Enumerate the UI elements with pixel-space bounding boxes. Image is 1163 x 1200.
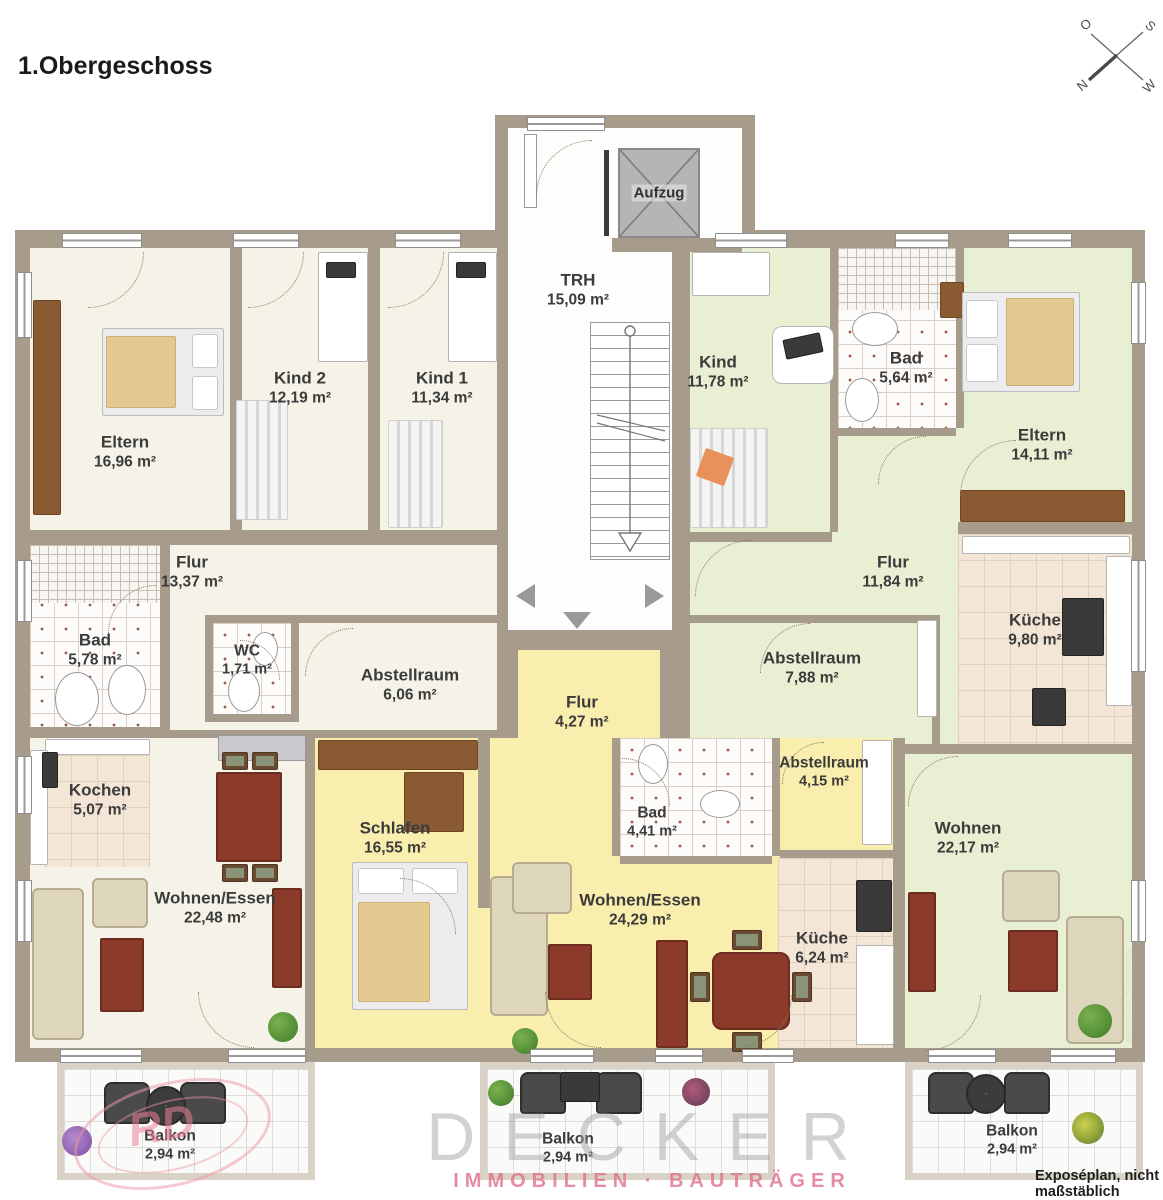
plant	[1072, 1112, 1104, 1144]
balcony-chair	[1004, 1072, 1050, 1114]
room-label-wohnen-right: Wohnen22,17 m²	[935, 818, 1002, 859]
bidet	[108, 665, 146, 715]
window	[715, 233, 787, 248]
bed-pillow	[966, 300, 998, 338]
armchair	[512, 862, 572, 914]
bed-blanket	[106, 336, 176, 408]
bed-pillow	[966, 344, 998, 382]
logo-initials: RD	[124, 1093, 199, 1158]
wall-bad-middle-left	[612, 738, 620, 856]
window	[17, 756, 32, 814]
room-label-abstellraum-left: Abstellraum6,06 m²	[361, 665, 459, 706]
plant	[1078, 1004, 1112, 1038]
window	[1050, 1049, 1116, 1063]
balcony-chair	[596, 1072, 642, 1114]
tv-sideboard	[908, 892, 936, 992]
window	[1008, 233, 1072, 248]
room-label-bad-middle: Bad4,41 m²	[627, 803, 677, 841]
shower-bad-right	[838, 248, 956, 310]
arrow-right-apartment	[645, 584, 664, 608]
laptop	[326, 262, 356, 278]
room-label-bad-right: Bad5,64 m²	[879, 348, 932, 389]
wall-middle-right-apartments	[893, 738, 905, 1048]
wall-kueche-right-bottom	[958, 744, 1132, 752]
window	[17, 880, 32, 942]
room-label-kueche-middle: Küche6,24 m²	[795, 928, 848, 969]
armchair	[1002, 870, 1060, 922]
chair	[222, 864, 248, 882]
wall-kind-right-bottom	[690, 532, 832, 542]
balcony-door-kueche	[742, 1049, 794, 1063]
fridge	[856, 945, 894, 1045]
bed-pillow	[358, 868, 404, 894]
room-label-schlafen: Schlafen16,55 m²	[360, 818, 431, 859]
room-label-kochen: Kochen5,07 m²	[69, 780, 131, 821]
wall-bad-middle-bottom	[620, 856, 772, 864]
window	[1131, 560, 1146, 672]
kitchen-counter	[1106, 556, 1132, 706]
window	[395, 233, 461, 248]
stove	[42, 752, 58, 788]
room-label-wc: WC1,71 m²	[222, 641, 272, 679]
compass-o: O	[1077, 15, 1094, 33]
storage-cupboard	[917, 620, 937, 717]
wall-wc-top	[205, 615, 307, 623]
room-label-wohnen-essen-middle: Wohnen/Essen24,29 m²	[579, 890, 701, 931]
window	[233, 233, 299, 248]
room-label-wohnen-essen-left: Wohnen/Essen22,48 m²	[154, 888, 276, 929]
room-label-flur-middle: Flur4,27 m²	[555, 692, 608, 733]
room-label-balkon-middle: Balkon2,94 m²	[542, 1129, 594, 1167]
room-label-flur-right: Flur11,84 m²	[862, 552, 923, 593]
compass-s: S	[1142, 17, 1159, 34]
arrow-middle-apartment	[563, 612, 591, 629]
room-label-kind-right: Kind11,78 m²	[687, 352, 748, 393]
chair	[792, 972, 812, 1002]
window	[655, 1049, 703, 1063]
window	[62, 233, 142, 248]
elevator: Aufzug	[618, 148, 700, 238]
compass-n: N	[1074, 76, 1091, 94]
balcony-table	[966, 1074, 1006, 1114]
toilet	[845, 378, 879, 422]
coffee-table	[100, 938, 144, 1012]
room-label-kueche-right: Küche9,80 m²	[1008, 610, 1061, 651]
rug	[388, 420, 443, 528]
window	[1131, 880, 1146, 942]
tv-sideboard	[656, 940, 688, 1048]
scale-note: Exposéplan, nicht maßstäblich	[1035, 1168, 1163, 1200]
page-title: 1.Obergeschoss	[18, 52, 213, 81]
balcony-door-left	[228, 1049, 306, 1063]
arrow-left-apartment	[516, 584, 535, 608]
toilet	[55, 672, 99, 726]
room-label-abstellraum-middle: Abstellraum4,15 m²	[779, 753, 869, 791]
plant	[268, 1012, 298, 1042]
armchair	[92, 878, 148, 928]
stove	[856, 880, 892, 932]
dishwasher	[1032, 688, 1066, 726]
window	[895, 233, 949, 248]
compass-rose: O S N W	[1064, 12, 1160, 102]
plant	[682, 1078, 710, 1106]
wall-eltern-right-bottom	[958, 522, 1132, 534]
kitchen-counter	[962, 536, 1130, 554]
single-bed	[692, 252, 770, 296]
stove	[1062, 598, 1104, 656]
room-label-kind1: Kind 111,34 m²	[411, 368, 472, 409]
balcony-door-middle	[530, 1049, 594, 1063]
chair	[252, 752, 278, 770]
window	[17, 560, 32, 622]
door-leaf-stairwell	[524, 134, 537, 208]
balcony-door-right	[928, 1049, 996, 1063]
wall-abstell-middle-bottom	[780, 850, 893, 858]
wall-wc-left	[205, 623, 213, 722]
wall-bad-right-bottom	[838, 428, 956, 436]
wardrobe	[318, 740, 478, 770]
elevator-label: Aufzug	[632, 185, 687, 202]
room-label-kind2: Kind 212,19 m²	[269, 368, 331, 409]
illustrator-credit: Illustration©ImmoGrafik	[1124, 950, 1133, 1043]
wall-aufzug-left	[604, 150, 609, 236]
coffee-table	[1008, 930, 1058, 992]
room-label-trh: TRH15,09 m²	[547, 270, 609, 311]
chair	[690, 972, 710, 1002]
window	[1131, 282, 1146, 344]
laptop	[456, 262, 486, 278]
window	[17, 272, 32, 338]
floorplan-page: 1.Obergeschoss O S N W	[0, 0, 1163, 1200]
room-label-abstellraum-right: Abstellraum7,88 m²	[763, 648, 861, 689]
sink	[852, 312, 898, 346]
room-label-balkon-right: Balkon2,94 m²	[986, 1121, 1038, 1159]
entry-door-stairwell	[527, 117, 605, 131]
dining-table	[216, 772, 282, 862]
chair	[732, 930, 762, 950]
bed-blanket	[1006, 298, 1074, 386]
staircase	[590, 322, 670, 560]
room-label-eltern-left: Eltern16,96 m²	[94, 432, 156, 473]
rug	[236, 400, 288, 520]
tv-sideboard	[272, 888, 302, 988]
wall-wc-right	[291, 623, 299, 722]
wall-abstell-right-top	[690, 615, 940, 623]
bed-pillow	[192, 334, 218, 368]
nightstand	[940, 282, 964, 318]
wall-kind-right	[830, 248, 838, 532]
window	[60, 1049, 142, 1063]
balcony-table	[560, 1072, 600, 1102]
sofa	[32, 888, 84, 1040]
wardrobe	[33, 300, 61, 515]
plant	[488, 1080, 514, 1106]
chair	[252, 864, 278, 882]
chair	[222, 752, 248, 770]
bed-pillow	[192, 376, 218, 410]
wall-wc-bottom	[205, 714, 299, 722]
room-label-eltern-right: Eltern14,11 m²	[1011, 425, 1072, 466]
sink	[700, 790, 740, 818]
room-label-flur-left: Flur13,37 m²	[161, 552, 223, 593]
kitchen-counter	[45, 739, 150, 755]
room-label-bad-left: Bad5,78 m²	[68, 630, 121, 671]
wall-abstell-left-top	[299, 615, 497, 623]
wall-schlafen-right	[478, 738, 490, 908]
